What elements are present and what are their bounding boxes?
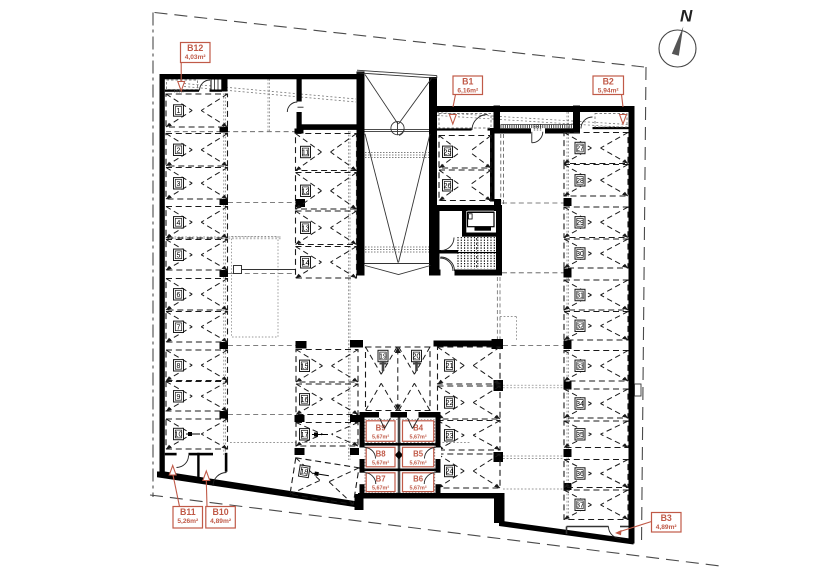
svg-text:7: 7 [177, 324, 181, 331]
svg-text:33: 33 [576, 363, 584, 370]
svg-text:9: 9 [177, 394, 181, 401]
svg-text:29: 29 [576, 220, 584, 227]
svg-text:1: 1 [177, 108, 181, 115]
svg-text:B12: B12 [187, 43, 203, 53]
svg-text:B6: B6 [413, 475, 424, 484]
svg-text:4: 4 [177, 220, 181, 227]
svg-text:18: 18 [300, 468, 309, 476]
svg-text:B7: B7 [376, 475, 386, 484]
svg-text:4,03m²: 4,03m² [185, 54, 207, 61]
svg-text:8: 8 [177, 363, 181, 370]
svg-text:35: 35 [576, 432, 584, 439]
svg-text:5,67m²: 5,67m² [372, 461, 389, 467]
svg-text:15: 15 [301, 363, 309, 370]
svg-text:B10: B10 [213, 507, 229, 517]
svg-text:27: 27 [576, 146, 584, 153]
svg-text:17: 17 [301, 432, 309, 439]
svg-text:B8: B8 [376, 450, 387, 459]
svg-text:6,16m²: 6,16m² [457, 87, 479, 94]
svg-text:20: 20 [413, 354, 421, 361]
svg-text:24: 24 [446, 469, 454, 476]
svg-text:5,94m²: 5,94m² [598, 87, 620, 94]
svg-text:6: 6 [177, 292, 181, 299]
svg-text:4,89m²: 4,89m² [210, 518, 232, 525]
svg-text:B2: B2 [603, 76, 614, 86]
svg-text:21: 21 [446, 363, 454, 370]
svg-text:25: 25 [444, 149, 452, 156]
svg-text:10: 10 [175, 432, 183, 439]
svg-text:5: 5 [177, 252, 181, 259]
svg-text:16: 16 [301, 397, 309, 404]
svg-text:36: 36 [576, 471, 584, 478]
svg-text:5,26m²: 5,26m² [177, 518, 199, 525]
svg-text:N: N [680, 7, 693, 26]
svg-text:4,89m²: 4,89m² [656, 524, 678, 531]
svg-text:31: 31 [576, 293, 584, 300]
svg-text:B3: B3 [661, 513, 672, 523]
svg-text:30: 30 [576, 251, 584, 258]
svg-text:5,67m²: 5,67m² [372, 435, 389, 441]
svg-text:23: 23 [446, 433, 454, 440]
svg-text:26: 26 [444, 183, 452, 190]
svg-text:3: 3 [177, 181, 181, 188]
svg-text:5,67m²: 5,67m² [410, 435, 427, 441]
svg-text:34: 34 [576, 401, 584, 408]
svg-text:19: 19 [379, 354, 387, 361]
svg-text:5,67m²: 5,67m² [372, 486, 389, 492]
svg-text:B5: B5 [413, 450, 424, 459]
svg-text:14: 14 [302, 260, 310, 267]
svg-text:B11: B11 [180, 507, 196, 517]
svg-text:37: 37 [576, 502, 584, 509]
svg-text:5,67m²: 5,67m² [410, 486, 427, 492]
svg-text:13: 13 [302, 225, 310, 232]
svg-text:12: 12 [302, 188, 310, 195]
svg-text:5,67m²: 5,67m² [410, 461, 427, 467]
svg-text:2: 2 [177, 147, 181, 154]
svg-text:28: 28 [576, 178, 584, 185]
svg-text:22: 22 [446, 400, 454, 407]
svg-text:11: 11 [302, 150, 309, 157]
svg-text:32: 32 [576, 323, 584, 330]
svg-text:B1: B1 [462, 76, 473, 86]
